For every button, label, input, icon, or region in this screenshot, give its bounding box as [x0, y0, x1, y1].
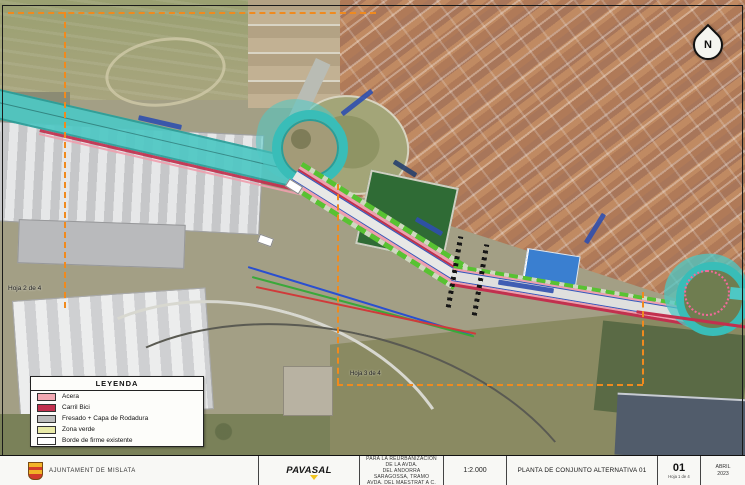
sheet-number: 01: [673, 463, 685, 474]
sheet-limit-left: [64, 12, 66, 308]
legend-title: LEYENDA: [31, 377, 203, 391]
legend-item-carril-bici: Carril Bici: [31, 402, 203, 413]
legend-swatch: [37, 437, 56, 445]
sheet-of: Hoja 1 de 4: [668, 474, 689, 479]
legend-item-acera: Acera: [31, 391, 203, 402]
roundabout-2-pink-ring: [684, 270, 730, 316]
project-title-line1: ESTUDIO DE SOLUCIONES PARA LA REURBANIZA…: [366, 456, 437, 468]
legend-item-zona-verde: Zona verde: [31, 424, 203, 435]
date-year: 2023: [717, 471, 729, 478]
sheet-limit-center: [337, 184, 339, 384]
legend-label: Acera: [62, 393, 79, 400]
legend-swatch: [37, 426, 56, 434]
project-title-line2: DEL ANDORRA SARAGOSSA, TRAMO AVDA. DEL M…: [366, 468, 437, 485]
scale-value: 1:2.000: [463, 467, 486, 474]
pavasal-logo: PAVASAL: [286, 465, 331, 476]
sheet-limit-bottom-center: [337, 384, 643, 386]
legend-item-borde-firme: Borde de firme existente: [31, 435, 203, 446]
legend-box: LEYENDA Acera Carril Bici Fresado + Capa…: [30, 376, 204, 447]
crossing-mark-2: [257, 234, 274, 248]
north-arrow-letter: N: [695, 32, 721, 58]
plan-title-cell: PLANTA DE CONJUNTO ALTERNATIVA 01: [507, 456, 658, 485]
parking-lot: [17, 219, 185, 269]
legend-label: Carril Bici: [62, 404, 90, 411]
municipal-crest-icon: [28, 462, 43, 480]
date-cell: ABRIL 2023: [701, 456, 745, 485]
scale-cell: 1:2.000: [444, 456, 507, 485]
title-block: AJUNTAMENT DE MISLATA PAVASAL ESTUDIO DE…: [0, 455, 745, 485]
warehouse-bottom-right: [614, 393, 745, 462]
sheet-limit-right: [642, 292, 644, 384]
plan-title: PLANTA DE CONJUNTO ALTERNATIVA 01: [518, 467, 647, 474]
legend-swatch: [37, 415, 56, 423]
pavasal-logo-triangle-icon: [310, 475, 318, 480]
plan-sheet: Hoja 2 de 4 Hoja 3 de 4 N LEYENDA Acera …: [0, 0, 745, 485]
sheet-label-center: Hoja 3 de 4: [350, 371, 381, 377]
sheet-number-cell: 01 Hoja 1 de 4: [658, 456, 701, 485]
client-cell: AJUNTAMENT DE MISLATA: [0, 456, 259, 485]
legend-label: Zona verde: [62, 426, 95, 433]
avenue-exit-east: [729, 287, 745, 301]
client-name: AJUNTAMENT DE MISLATA: [49, 468, 136, 474]
legend-swatch: [37, 393, 56, 401]
legend-item-fresado: Fresado + Capa de Rodadura: [31, 413, 203, 424]
project-title-cell: ESTUDIO DE SOLUCIONES PARA LA REURBANIZA…: [360, 456, 444, 485]
sheet-label-left: Hoja 2 de 4: [8, 285, 41, 292]
legend-swatch: [37, 404, 56, 412]
legend-label: Fresado + Capa de Rodadura: [62, 415, 148, 422]
consultant-cell: PAVASAL: [259, 456, 360, 485]
roundabout-1-island: [291, 129, 311, 149]
legend-label: Borde de firme existente: [62, 437, 132, 444]
